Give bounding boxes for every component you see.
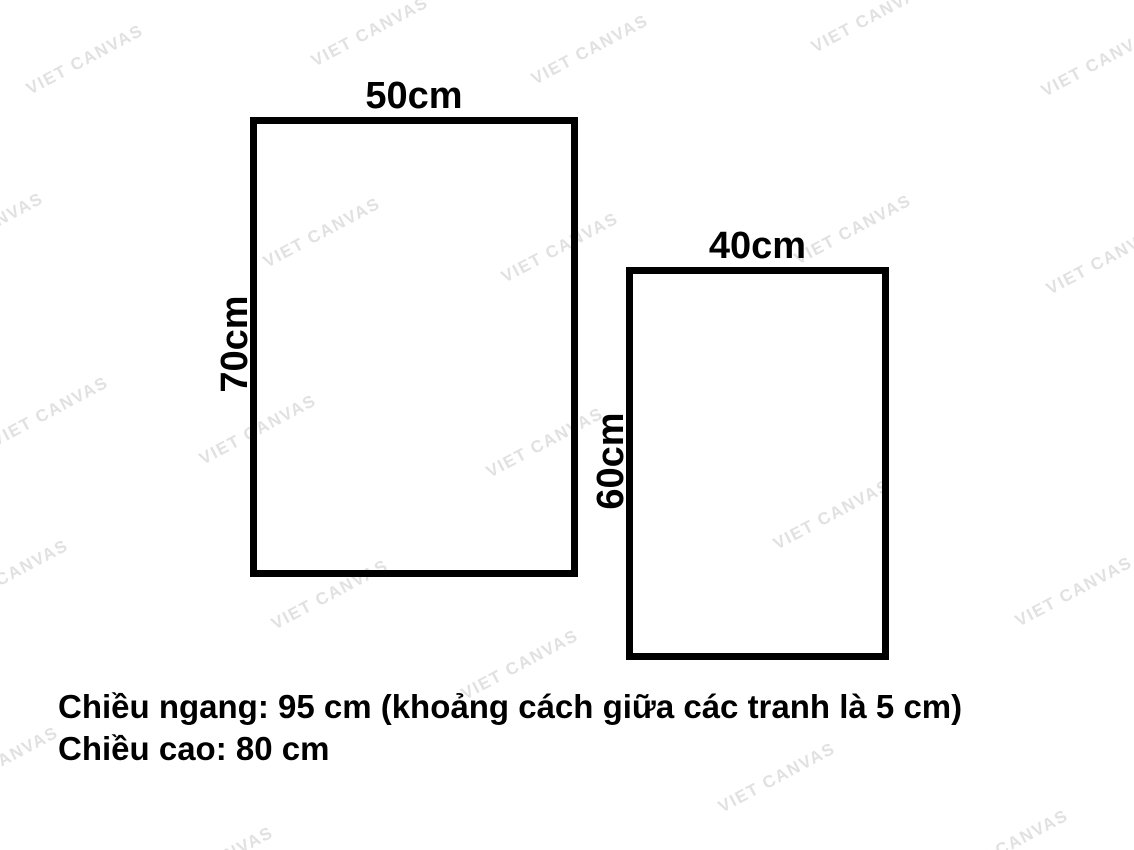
caption-block: Chiều ngang: 95 cm (khoảng cách giữa các…: [58, 686, 962, 770]
watermark-text: VIET CANVAS: [23, 21, 147, 99]
watermark-text: VIET CANVAS: [1012, 553, 1134, 631]
frame-right-height-label: 60cm: [592, 412, 630, 509]
watermark-text: VIET CANVAS: [0, 189, 47, 267]
diagram-canvas: VIET CANVASVIET CANVASVIET CANVASVIET CA…: [0, 0, 1134, 850]
watermark-text: VIET CANVAS: [153, 823, 277, 850]
watermark-text: VIET CANVAS: [948, 806, 1072, 850]
frame-left-width-label: 50cm: [365, 77, 462, 115]
frame-right-rectangle: 40cm 60cm: [626, 267, 889, 660]
frame-right-width-label: 40cm: [709, 227, 806, 265]
watermark-text: VIET CANVAS: [0, 536, 72, 614]
watermark-text: VIET CANVAS: [528, 11, 652, 89]
caption-line-width: Chiều ngang: 95 cm (khoảng cách giữa các…: [58, 686, 962, 728]
frame-left-rectangle: 50cm 70cm: [250, 117, 578, 577]
watermark-text: VIET CANVAS: [1043, 221, 1134, 299]
watermark-text: VIET CANVAS: [308, 0, 432, 71]
watermark-text: VIET CANVAS: [0, 373, 112, 451]
watermark-text: VIET CANVAS: [0, 723, 62, 801]
watermark-text: VIET CANVAS: [1038, 23, 1134, 101]
watermark-text: VIET CANVAS: [791, 191, 915, 269]
caption-line-height: Chiều cao: 80 cm: [58, 728, 962, 770]
frame-left-height-label: 70cm: [216, 295, 254, 392]
watermark-text: VIET CANVAS: [808, 0, 932, 57]
